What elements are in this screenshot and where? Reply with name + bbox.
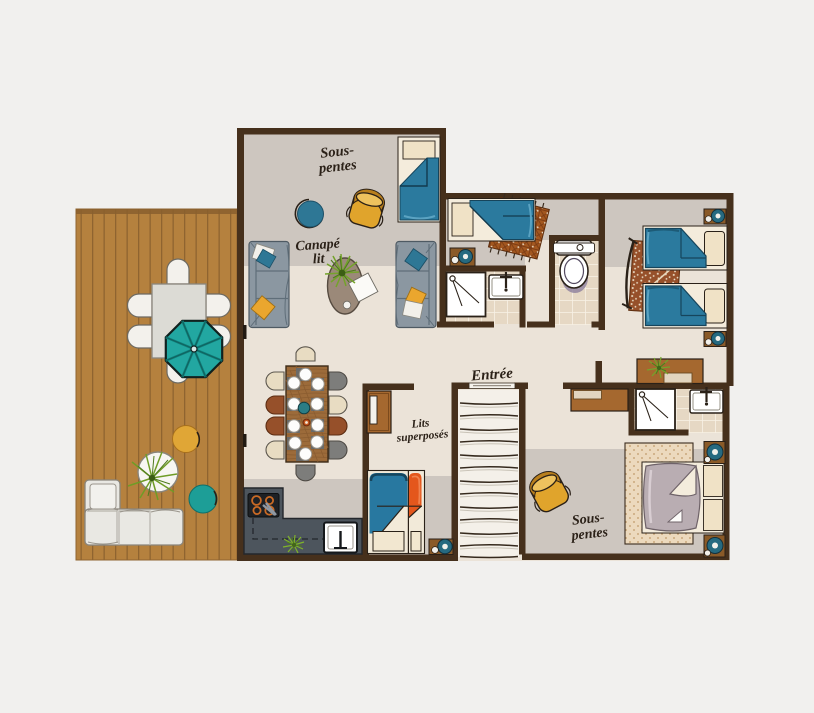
svg-text:Entrée: Entrée [470, 366, 514, 385]
svg-text:Lits: Lits [410, 417, 430, 431]
svg-text:lit: lit [312, 252, 326, 268]
